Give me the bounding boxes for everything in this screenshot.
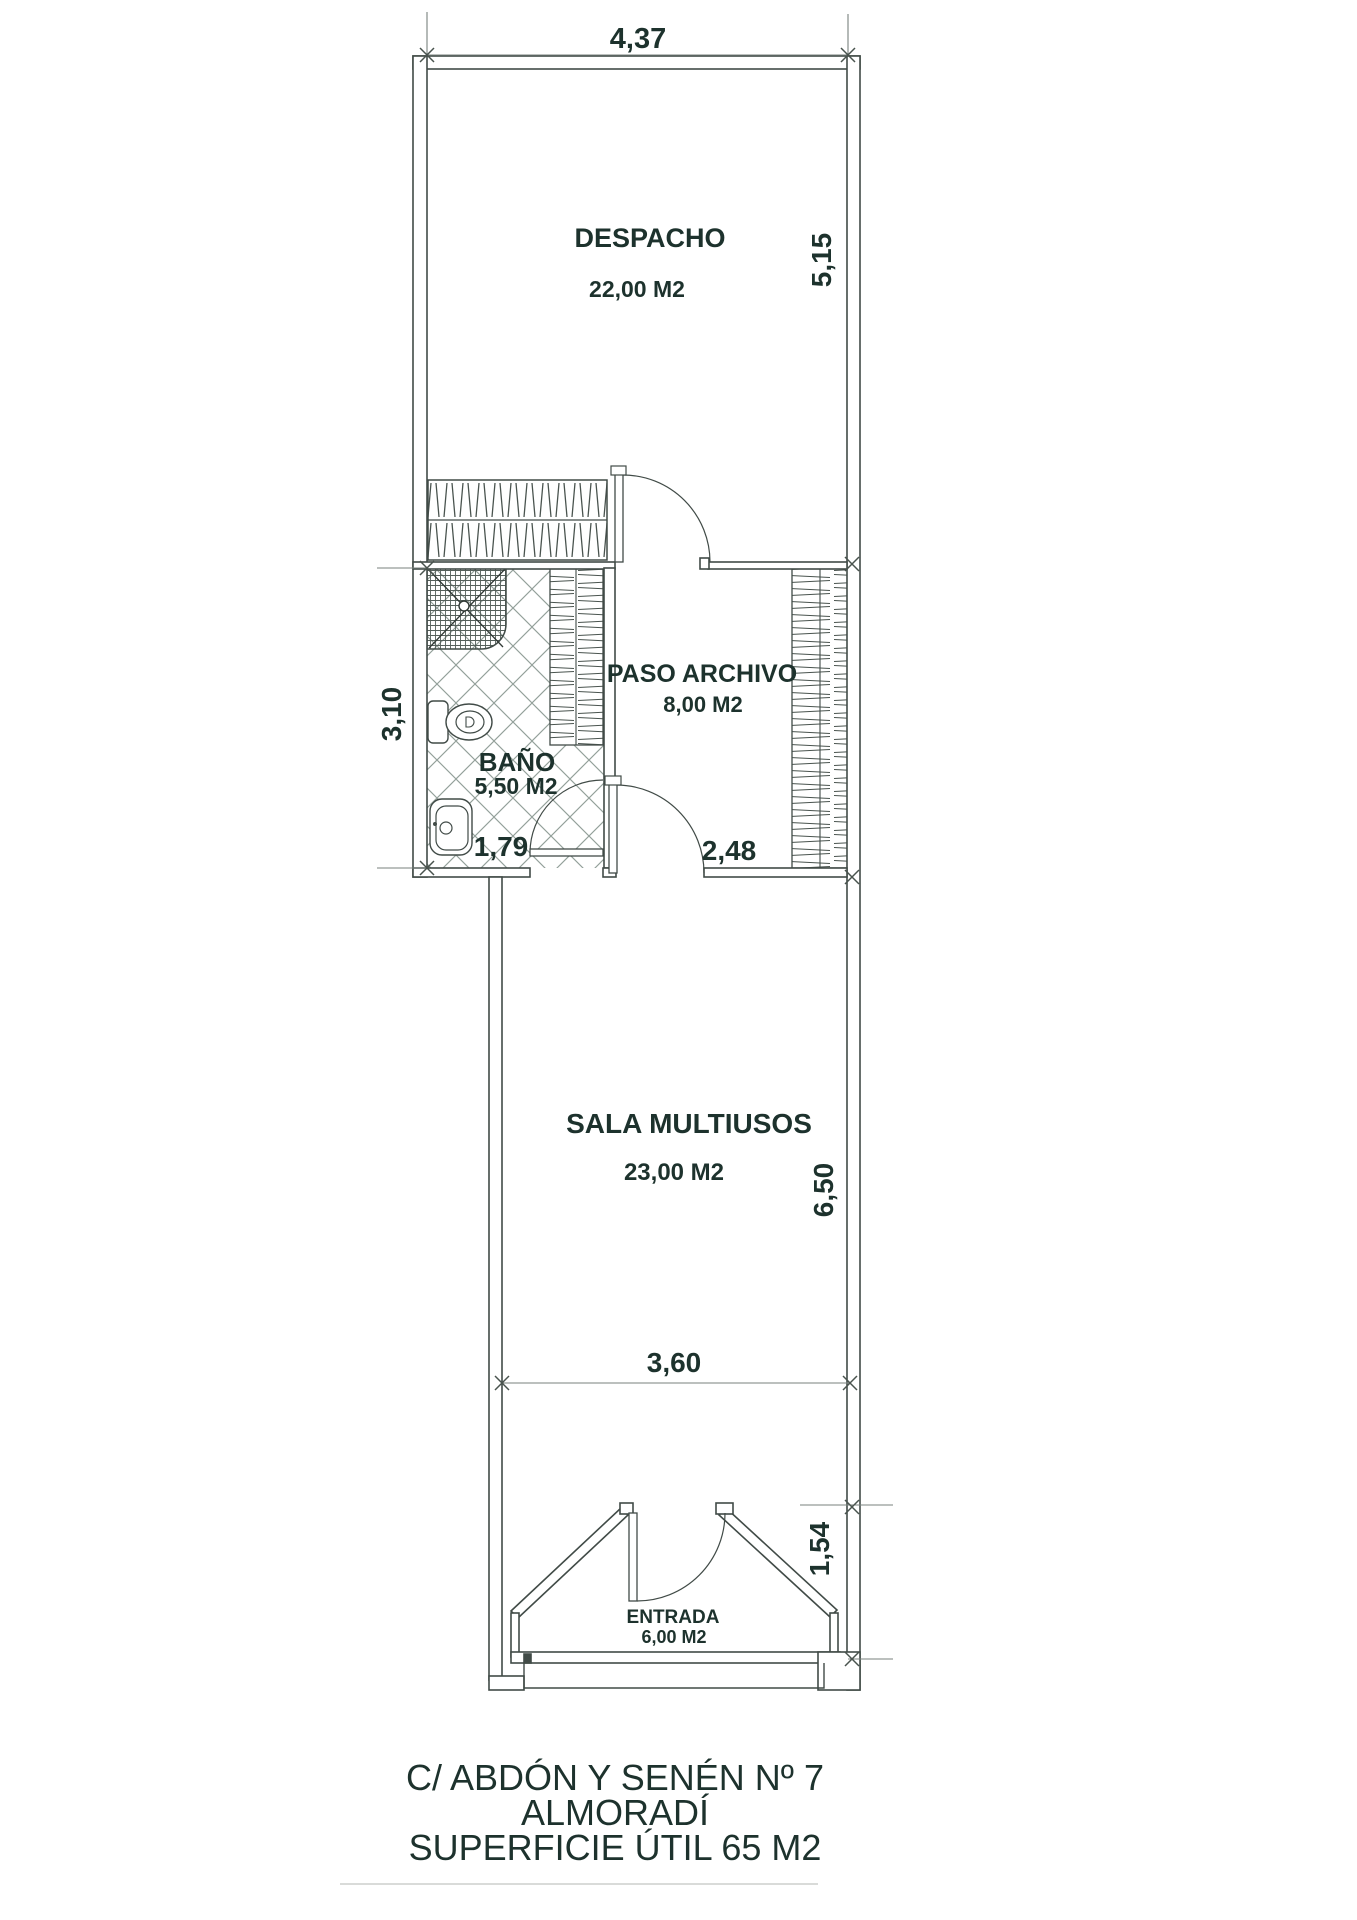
dim-paso-width: 2,48	[702, 835, 757, 866]
door-jamb-entrada-right	[716, 1503, 733, 1514]
room-despacho-label: DESPACHO	[574, 223, 725, 253]
floorplan-page: DESPACHO 22,00 M2 BAÑO 5,50 M2 PASO ARCH…	[0, 0, 1357, 1920]
dim-sala-height: 6,50	[808, 1163, 839, 1218]
shower-drain	[459, 601, 469, 611]
dim-despacho-height: 5,15	[806, 233, 837, 288]
title-block: C/ ABDÓN Y SENÉN Nº 7 ALMORADÍ SUPERFICI…	[406, 1757, 824, 1868]
room-despacho-area: 22,00 M2	[589, 276, 685, 302]
wall-left-upper	[413, 56, 427, 877]
dim-top-width: 4,37	[610, 23, 666, 55]
wall-mid-upper-right	[708, 562, 847, 569]
wardrobe-hatch-bottom	[428, 520, 607, 560]
toilet-fixture	[428, 701, 492, 743]
toilet-bowl	[446, 704, 492, 740]
wall-top	[413, 56, 860, 69]
sink-drain-dot	[433, 822, 437, 826]
room-paso-label: PASO ARCHIVO	[607, 660, 797, 688]
dim-bano-height: 3,10	[376, 687, 407, 742]
wardrobe-despacho	[428, 480, 607, 560]
floorplan-drawing: DESPACHO 22,00 M2 BAÑO 5,50 M2 PASO ARCH…	[0, 0, 1357, 1920]
wall-mid-upper-left	[413, 562, 615, 569]
room-entrada-area: 6,00 M2	[641, 1627, 706, 1647]
facade-threshold-tick	[524, 1654, 531, 1663]
door-despacho-arc	[623, 475, 710, 562]
door-despacho-hinge	[611, 466, 626, 475]
dim-sala-width: 3,60	[647, 1347, 702, 1378]
room-bano-area: 5,50 M2	[474, 773, 557, 799]
room-paso-area: 8,00 M2	[663, 692, 743, 717]
wall-mid-lower-right	[704, 868, 847, 877]
door-despacho-leaf	[615, 473, 623, 562]
wall-porch-stub-left	[511, 1613, 519, 1657]
street-step-line	[524, 1663, 824, 1688]
room-sala-label: SALA MULTIUSOS	[566, 1108, 812, 1139]
door-paso-leaf	[609, 783, 617, 873]
wall-porch-stub-right	[830, 1613, 838, 1657]
room-sala-area: 23,00 M2	[624, 1159, 724, 1186]
room-entrada-label: ENTRADA	[627, 1607, 720, 1628]
wall-porch-splay-left	[511, 1508, 628, 1618]
door-entrada-arc	[637, 1513, 725, 1601]
shower-tray	[427, 568, 506, 649]
dim-bano-width: 1,79	[474, 831, 529, 862]
door-paso-hinge	[605, 776, 621, 785]
door-jamb-despacho	[700, 558, 709, 569]
door-paso-arc	[616, 785, 704, 873]
title-line-3: SUPERFICIE ÚTIL 65 M2	[409, 1827, 822, 1868]
wardrobe-hatch-top	[428, 480, 607, 520]
wall-left-lower-cap	[489, 1676, 524, 1690]
street-step	[524, 1663, 824, 1688]
door-bano-leaf	[530, 849, 603, 856]
sink-fixture	[430, 799, 472, 855]
door-entrada-leaf	[629, 1513, 637, 1601]
door-jamb-entrada-left	[620, 1503, 633, 1514]
toilet-tank	[428, 701, 448, 743]
dim-entrada-depth: 1,54	[804, 1521, 835, 1576]
shelf-band-paso	[792, 568, 848, 868]
wall-facade	[511, 1652, 840, 1663]
shelf-band-bano	[550, 568, 603, 745]
wall-left-lower	[489, 877, 502, 1680]
